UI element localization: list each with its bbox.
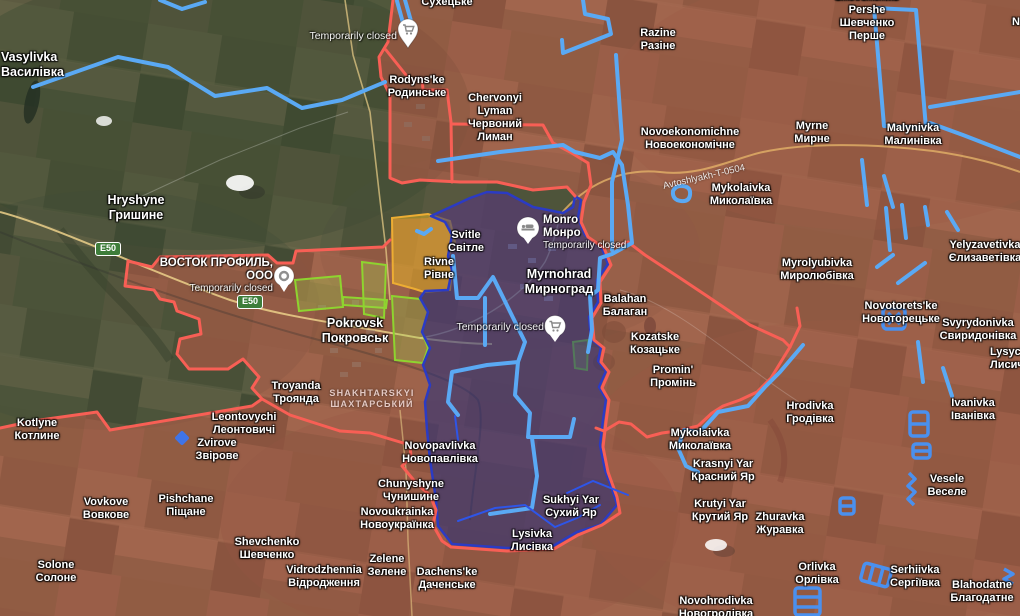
map-canvas[interactable]: VasylivkaВасилівка HryshyneГришине Сухец…: [0, 0, 1020, 616]
contested-zone-yellow: [392, 214, 455, 292]
road-badge-e50-west: E50: [95, 242, 121, 256]
road-badge-e50-pokrovsk: E50: [237, 295, 263, 309]
district-label-shakhtarskyi: SHAKHTARSKYIШАХТАРСЬКИЙ: [329, 388, 414, 411]
map-graphics: [0, 0, 1020, 616]
